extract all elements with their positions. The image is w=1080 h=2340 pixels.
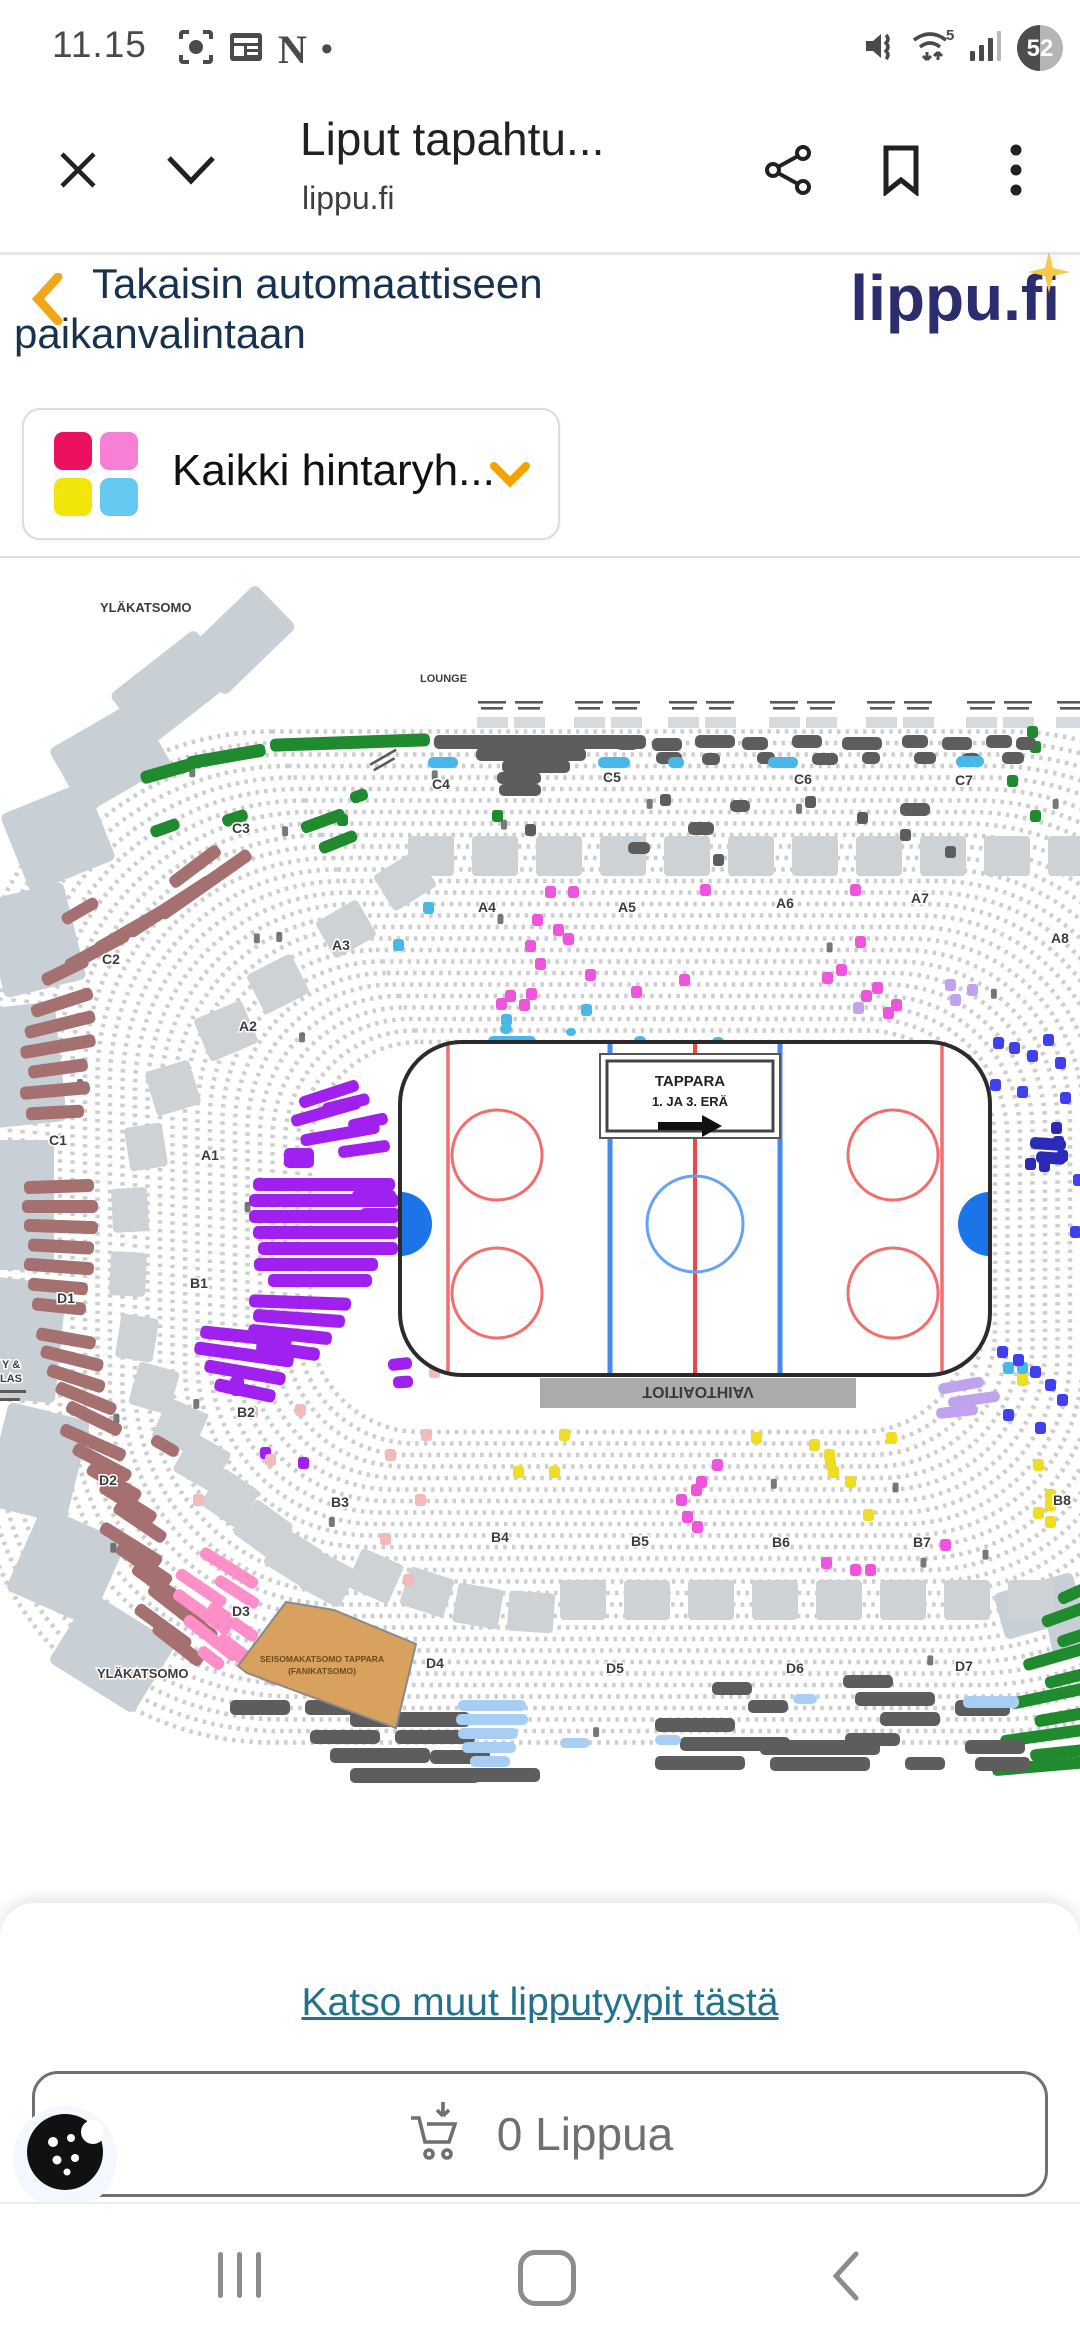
other-ticket-types-link[interactable]: Katso muut lipputyypit tästä	[0, 1981, 1080, 2025]
clock: 11.15	[52, 24, 147, 66]
back-to-auto-selection-link[interactable]: Takaisin automaattiseen paikanvalintaan	[14, 259, 714, 359]
sparkle-icon	[1026, 249, 1072, 300]
svg-text:TAPPARA: TAPPARA	[655, 1073, 725, 1090]
svg-text:A1: A1	[201, 1147, 219, 1163]
cart-count-label: 0 Lippua	[497, 2107, 674, 2161]
bookmark-button[interactable]	[868, 88, 934, 252]
arena-seat-map[interactable]: SEISOMAKATSOMO TAPPARA(FANIKATSOMO)TAPPA…	[0, 560, 1080, 1903]
divider	[0, 556, 1080, 558]
cart-button[interactable]: 0 Lippua	[32, 2071, 1048, 2197]
back-nav-row: Takaisin automaattiseen paikanvalintaan …	[0, 255, 1080, 400]
svg-text:LAS: LAS	[0, 1373, 22, 1385]
svg-text:B8: B8	[1053, 1492, 1071, 1508]
price-group-dropdown[interactable]: Kaikki hintaryh...	[22, 408, 560, 540]
svg-text:D2: D2	[99, 1472, 117, 1488]
svg-text:D3: D3	[232, 1603, 250, 1619]
swatch-blue	[100, 478, 138, 516]
browser-header: Liput tapahtu... lippu.fi	[0, 88, 1080, 255]
svg-text:(FANIKATSOMO): (FANIKATSOMO)	[288, 1666, 356, 1676]
svg-text:B7: B7	[913, 1534, 931, 1550]
swatch-red	[54, 432, 92, 470]
mute-icon	[862, 27, 900, 70]
svg-text:A7: A7	[911, 890, 929, 906]
svg-text:B4: B4	[491, 1529, 509, 1545]
page-url: lippu.fi	[302, 180, 395, 217]
svg-text:YLÄKATSOMO: YLÄKATSOMO	[97, 1666, 188, 1681]
close-tab-button[interactable]	[48, 88, 108, 252]
price-group-swatches-icon	[54, 432, 140, 518]
svg-text:SEISOMAKATSOMO TAPPARA: SEISOMAKATSOMO TAPPARA	[260, 1654, 384, 1664]
price-group-label: Kaikki hintaryh...	[172, 446, 495, 496]
svg-text:C5: C5	[603, 769, 621, 785]
svg-text:A4: A4	[478, 899, 496, 915]
recents-button[interactable]	[218, 2252, 261, 2298]
status-bar: 11.15 N •	[0, 0, 1080, 88]
menu-kebab-button[interactable]	[986, 88, 1046, 252]
share-button[interactable]	[756, 88, 822, 252]
svg-text:B6: B6	[772, 1534, 790, 1550]
wifi5-icon: 5	[910, 26, 958, 71]
svg-text:A3: A3	[332, 937, 350, 953]
svg-text:C7: C7	[955, 772, 973, 788]
svg-text:1. JA 3. ERÄ: 1. JA 3. ERÄ	[652, 1094, 729, 1109]
arena-map-container: SEISOMAKATSOMO TAPPARA(FANIKATSOMO)TAPPA…	[0, 560, 1080, 1903]
svg-text:C4: C4	[432, 776, 450, 792]
battery-indicator: 52	[1014, 22, 1066, 74]
chevron-down-icon	[490, 462, 530, 493]
page-title: Liput tapahtu...	[300, 112, 604, 166]
svg-text:YLÄKATSOMO: YLÄKATSOMO	[100, 600, 191, 615]
svg-text:B2: B2	[237, 1404, 255, 1420]
svg-text:A5: A5	[618, 899, 636, 915]
svg-text:VAIHTOAITIOT: VAIHTOAITIOT	[642, 1383, 754, 1400]
battery-percent-svg: 52	[1027, 35, 1054, 62]
notification-dot-icon: •	[321, 30, 333, 69]
svg-text:Y &: Y &	[2, 1359, 20, 1371]
screenshot-icon	[178, 29, 214, 70]
svg-text:B3: B3	[331, 1494, 349, 1510]
svg-text:B1: B1	[190, 1275, 208, 1291]
svg-text:LOUNGE: LOUNGE	[420, 673, 467, 685]
svg-text:C2: C2	[102, 951, 120, 967]
signal-icon	[968, 27, 1004, 70]
ice-rink: TAPPARA1. JA 3. ERÄVAIHTOAITIOT	[400, 1042, 990, 1408]
phone-screen: 11.15 N •	[0, 0, 1080, 2340]
svg-text:D6: D6	[786, 1660, 804, 1676]
svg-text:D7: D7	[955, 1658, 973, 1674]
cart-icon	[407, 2100, 469, 2169]
netflix-notification-icon: N	[278, 26, 307, 73]
back-button[interactable]	[828, 2250, 862, 2307]
android-nav-bar	[0, 2202, 1080, 2340]
svg-text:D4: D4	[426, 1655, 444, 1671]
svg-text:5: 5	[946, 27, 954, 44]
svg-text:A6: A6	[776, 895, 794, 911]
home-button[interactable]	[518, 2250, 576, 2306]
svg-text:B5: B5	[631, 1533, 649, 1549]
svg-text:C6: C6	[794, 771, 812, 787]
swatch-yellow	[54, 478, 92, 516]
collapse-chevron-button[interactable]	[158, 88, 224, 252]
svg-text:C1: C1	[49, 1132, 67, 1148]
svg-text:D5: D5	[606, 1660, 624, 1676]
svg-text:D1: D1	[57, 1290, 75, 1306]
svg-text:C3: C3	[232, 820, 250, 836]
news-widget-icon	[228, 29, 264, 70]
svg-text:A2: A2	[239, 1018, 257, 1034]
svg-text:A8: A8	[1051, 930, 1069, 946]
swatch-pink	[100, 432, 138, 470]
cookie-consent-button[interactable]	[27, 2114, 103, 2190]
